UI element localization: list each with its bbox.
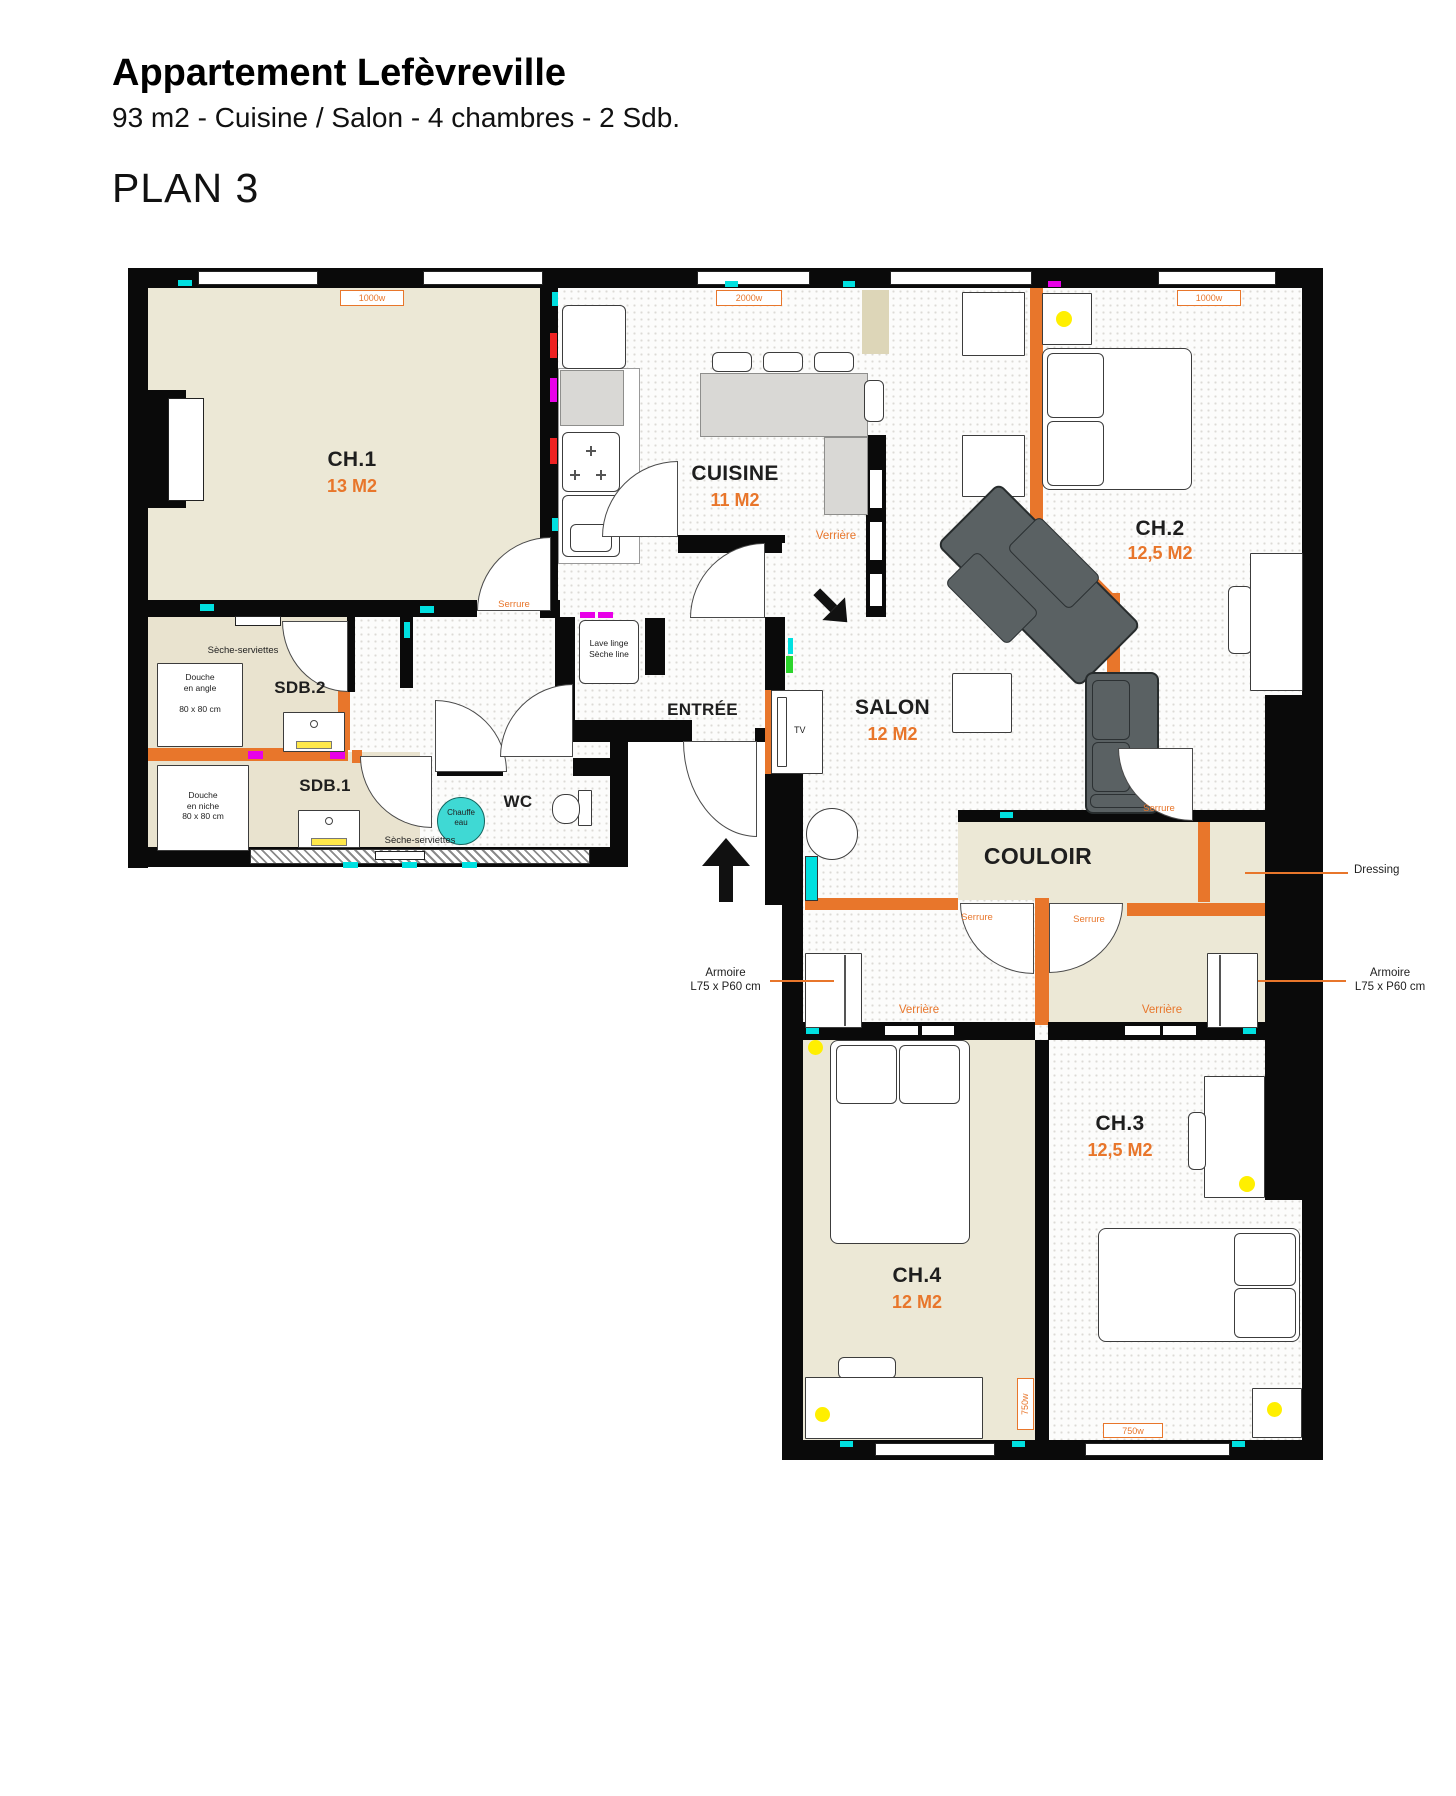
stove xyxy=(562,432,620,492)
fridge xyxy=(562,305,626,369)
leader-line-armoire-left xyxy=(770,980,834,982)
room-area-ch2: 12,5 M2 xyxy=(1095,543,1225,564)
tick-cyan xyxy=(420,606,434,613)
leader-line-dressing xyxy=(1245,872,1348,874)
wardrobe-door-line xyxy=(844,955,846,1026)
washbasin-drain xyxy=(325,817,333,825)
ceiling-light xyxy=(1267,1402,1282,1417)
wall-left xyxy=(128,268,148,868)
wall-ch1-bottom-jamb xyxy=(550,600,560,617)
towel-dryer-label-sdb2: Sèche-serviettes xyxy=(188,645,298,656)
desk-chair-ch3 xyxy=(1188,1112,1206,1170)
wall-wc-top-b xyxy=(573,758,610,776)
tick-cyan xyxy=(725,281,738,287)
room-label-salon: SALON xyxy=(830,696,955,720)
wall-entree-salon-mid xyxy=(765,617,785,692)
wall-entree-bottom xyxy=(555,720,692,742)
desk-ch4 xyxy=(805,1377,983,1439)
serrure-label-ch2: Serrure xyxy=(1126,803,1192,814)
washbasin-tap xyxy=(311,838,347,846)
tick-magenta xyxy=(550,378,557,402)
water-heater-label: Chauffe eau xyxy=(438,808,484,828)
dressing-label: Dressing xyxy=(1354,864,1399,876)
wall-orange-couloir-divider xyxy=(1198,822,1210,902)
tick-cyan xyxy=(805,856,818,901)
room-label-sdb2: SDB.2 xyxy=(250,678,350,698)
verriere-glass xyxy=(1125,1026,1160,1035)
tick-magenta xyxy=(330,751,345,759)
tv-label: TV xyxy=(794,725,806,735)
room-area-ch1: 13 M2 xyxy=(282,476,422,497)
window-top xyxy=(1158,271,1276,285)
verriere-glass xyxy=(885,1026,918,1035)
arrow-stem xyxy=(719,866,733,902)
burner-icon xyxy=(596,470,606,480)
tick-red xyxy=(550,438,557,464)
verriere-glass xyxy=(870,574,882,606)
tick-cyan xyxy=(1000,812,1013,818)
tick-green xyxy=(786,656,793,673)
heater-label-ch1: 1000w xyxy=(340,290,404,306)
pillow xyxy=(836,1045,897,1104)
towel-rail-sdb2 xyxy=(235,616,281,626)
tick-cyan xyxy=(843,281,855,287)
pillow xyxy=(1047,421,1104,486)
washing-machine-label: Lave linge Sèche line xyxy=(580,638,638,659)
shower-sdb1-label: Douche en niche 80 x 80 cm xyxy=(159,790,247,822)
room-label-ch4: CH.4 xyxy=(862,1264,972,1288)
heater-label-ch3: 750w xyxy=(1103,1423,1163,1438)
island-chair xyxy=(814,352,854,372)
verriere-label-ch4: Verrière xyxy=(888,1004,950,1016)
tv-screen xyxy=(777,697,787,767)
wall-orange-vestibule-vert xyxy=(1035,898,1049,1025)
desk-ch3 xyxy=(1204,1076,1265,1198)
window-top xyxy=(423,271,543,285)
wall-orange-salon-bottom xyxy=(805,898,958,910)
washbasin-drain xyxy=(310,720,318,728)
verriere-glass xyxy=(922,1026,954,1035)
tick-cyan xyxy=(1232,1441,1245,1447)
wall-orange-dressing-top xyxy=(1127,903,1267,916)
wardrobe-ch3 xyxy=(1207,953,1258,1028)
kitchen-island xyxy=(700,373,868,437)
pillow xyxy=(1234,1288,1296,1338)
island-chair xyxy=(712,352,752,372)
room-label-sdb1: SDB.1 xyxy=(275,776,375,796)
tick-cyan xyxy=(462,862,477,868)
tick-red xyxy=(550,333,557,358)
toilet-bowl xyxy=(552,794,580,824)
pillow xyxy=(1234,1233,1296,1286)
window-bottom-ch3 xyxy=(1085,1443,1230,1456)
room-ch1-floor xyxy=(148,288,540,600)
verriere-glass xyxy=(870,470,882,508)
tick-cyan xyxy=(402,862,417,868)
desk-chair-ch2 xyxy=(1228,586,1252,654)
room-label-ch1: CH.1 xyxy=(282,448,422,472)
room-label-wc: WC xyxy=(488,792,548,812)
kitchen-worktop xyxy=(560,370,624,426)
window-top xyxy=(890,271,1032,285)
tick-magenta xyxy=(1048,281,1061,287)
room-label-ch3: CH.3 xyxy=(1060,1112,1180,1136)
verriere-glass xyxy=(1163,1026,1196,1035)
room-label-cuisine: CUISINE xyxy=(665,462,805,486)
towel-dryer-label-sdb1: Sèche-serviettes xyxy=(365,835,475,846)
arrow-stem xyxy=(813,588,837,612)
ceiling-light xyxy=(808,1040,823,1055)
burner-icon xyxy=(570,470,580,480)
desk-ch2 xyxy=(1250,553,1303,691)
ceiling-light xyxy=(1239,1176,1255,1192)
verriere-glass xyxy=(870,522,882,560)
tick-cyan xyxy=(178,280,192,286)
wall-outer-mid-vert xyxy=(782,732,803,1460)
ceiling-light xyxy=(1056,311,1072,327)
desk-chair-ch4 xyxy=(838,1357,896,1379)
island-chair xyxy=(864,380,884,422)
leader-line-armoire-right xyxy=(1258,980,1346,982)
tick-cyan xyxy=(552,292,558,306)
serrure-label-ch1: Serrure xyxy=(478,599,550,610)
tick-magenta xyxy=(580,612,595,618)
salon-round-table xyxy=(806,808,858,860)
heater-label-ch2: 1000w xyxy=(1177,290,1241,306)
tick-cyan xyxy=(404,622,410,638)
wardrobe-door-line xyxy=(1219,955,1221,1026)
room-label-couloir: COULOIR xyxy=(968,843,1108,870)
page-subtitle: 93 m2 - Cuisine / Salon - 4 chambres - 2… xyxy=(112,102,680,134)
outside-area xyxy=(128,867,628,1796)
wall-ch4-ch3-divider xyxy=(1035,1040,1049,1440)
pillow xyxy=(899,1045,960,1104)
window-left-ch1 xyxy=(168,398,204,501)
wall-washer-right xyxy=(645,618,665,675)
tick-cyan xyxy=(1243,1028,1256,1034)
page-title: Appartement Lefèvreville xyxy=(112,52,566,95)
window-top xyxy=(198,271,318,285)
room-area-cuisine: 11 M2 xyxy=(665,490,805,511)
tick-cyan xyxy=(343,862,358,868)
heater-label-cuisine: 2000w xyxy=(716,290,782,306)
duct-strip xyxy=(862,290,889,354)
room-area-ch3: 12,5 M2 xyxy=(1060,1140,1180,1161)
wardrobe-ch4 xyxy=(805,953,862,1028)
tick-cyan xyxy=(200,604,214,611)
pillow xyxy=(1047,353,1104,418)
room-label-entree: ENTRÉE xyxy=(635,700,770,720)
sofa-cushion xyxy=(1092,680,1130,740)
salon-side-table xyxy=(952,673,1012,733)
towel-rail-sdb1 xyxy=(375,851,425,860)
floor-plan-page: Appartement Lefèvreville 93 m2 - Cuisine… xyxy=(0,0,1456,1796)
toilet-tank xyxy=(578,790,592,826)
room-area-salon: 12 M2 xyxy=(830,724,955,745)
serrure-label-ch3: Serrure xyxy=(1056,914,1122,925)
ceiling-light xyxy=(815,1407,830,1422)
window-top xyxy=(697,271,810,285)
entry-arrow-icon xyxy=(702,838,750,902)
tick-cyan xyxy=(788,638,793,654)
window-bottom-ch4 xyxy=(875,1443,995,1456)
tick-cyan xyxy=(806,1028,819,1034)
tick-magenta xyxy=(248,751,263,759)
shower-sdb2-label: Douche en angle 80 x 80 cm xyxy=(159,672,241,715)
salon-cabinet xyxy=(962,292,1025,356)
armoire-label-right: Armoire L75 x P60 cm xyxy=(1345,966,1435,995)
arrow-head xyxy=(702,838,750,866)
verriere-label-cuisine: Verrière xyxy=(805,530,867,542)
plan-number: PLAN 3 xyxy=(112,165,259,212)
washbasin-tap xyxy=(296,741,332,749)
island-chair xyxy=(763,352,803,372)
wall-right-thin xyxy=(1302,268,1323,1460)
tick-cyan xyxy=(840,1441,853,1447)
room-area-ch4: 12 M2 xyxy=(862,1292,972,1313)
wall-entree-salon-stub xyxy=(765,535,785,543)
tick-cyan xyxy=(1012,1441,1025,1447)
room-label-ch2: CH.2 xyxy=(1095,517,1225,541)
burner-icon xyxy=(586,446,596,456)
heater-label-ch4: 750w xyxy=(1017,1378,1034,1430)
verriere-label-ch3: Verrière xyxy=(1130,1004,1194,1016)
tick-magenta xyxy=(598,612,613,618)
kitchen-island-leg xyxy=(824,437,868,515)
armoire-label-left: Armoire L75 x P60 cm xyxy=(678,966,773,995)
serrure-label-ch4: Serrure xyxy=(944,912,1010,923)
